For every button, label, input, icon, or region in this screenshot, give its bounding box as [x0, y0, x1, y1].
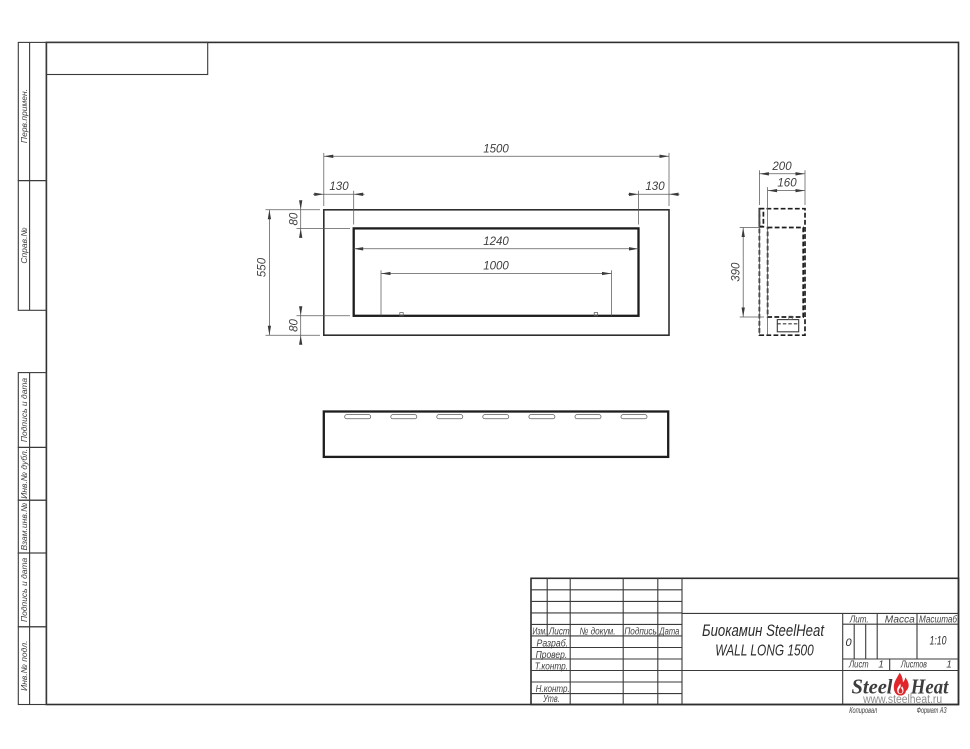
- svg-text:Подпись и дата: Подпись и дата: [19, 378, 29, 443]
- svg-text:Листов: Листов: [900, 660, 927, 671]
- svg-text:Изм.: Изм.: [533, 627, 548, 638]
- svg-text:130: 130: [329, 181, 349, 193]
- svg-text:550: 550: [257, 257, 269, 277]
- svg-text:№ докум.: № докум.: [580, 627, 616, 638]
- svg-text:Масштаб: Масштаб: [919, 614, 957, 626]
- svg-text:Т.контр.: Т.контр.: [535, 661, 568, 672]
- svg-text:1240: 1240: [483, 236, 509, 248]
- svg-text:Взам.инв.№: Взам.инв.№: [19, 503, 29, 551]
- svg-text:80: 80: [289, 212, 301, 225]
- svg-text:1000: 1000: [483, 261, 509, 273]
- svg-text:0: 0: [846, 637, 853, 649]
- svg-text:160: 160: [777, 178, 797, 190]
- svg-text:1: 1: [878, 660, 884, 671]
- svg-text:Лит.: Лит.: [849, 615, 869, 626]
- svg-text:Разраб.: Разраб.: [537, 637, 569, 649]
- svg-text:390: 390: [730, 262, 742, 282]
- svg-text:Справ.№: Справ.№: [19, 227, 29, 263]
- svg-text:1:10: 1:10: [930, 635, 947, 647]
- svg-text:Провер.: Провер.: [536, 650, 568, 661]
- svg-text:Подпись и дата: Подпись и дата: [19, 557, 29, 622]
- svg-text:Подпись: Подпись: [624, 627, 657, 638]
- svg-text:200: 200: [771, 161, 792, 173]
- svg-text:Инв.№ подл.: Инв.№ подл.: [19, 641, 29, 691]
- svg-text:Масса: Масса: [885, 615, 915, 626]
- svg-text:Лист: Лист: [548, 627, 570, 638]
- svg-text:Утв.: Утв.: [542, 694, 559, 705]
- svg-text:80: 80: [289, 319, 301, 332]
- svg-text:1500: 1500: [483, 144, 509, 156]
- svg-text:130: 130: [645, 181, 665, 193]
- svg-text:Перв.примен.: Перв.примен.: [19, 89, 29, 143]
- svg-text:Н.контр.: Н.контр.: [536, 684, 570, 695]
- svg-text:Биокамин SteelHeat: Биокамин SteelHeat: [702, 622, 825, 640]
- svg-text:Копировал: Копировал: [849, 705, 877, 715]
- svg-text:Инв.№ дубл.: Инв.№ дубл.: [19, 449, 29, 499]
- svg-text:Дата: Дата: [659, 627, 680, 638]
- svg-text:1: 1: [946, 660, 952, 671]
- svg-text:Формат А3: Формат А3: [917, 705, 947, 715]
- svg-text:WALL LONG 1500: WALL LONG 1500: [715, 643, 814, 660]
- svg-text:Лист: Лист: [848, 660, 868, 671]
